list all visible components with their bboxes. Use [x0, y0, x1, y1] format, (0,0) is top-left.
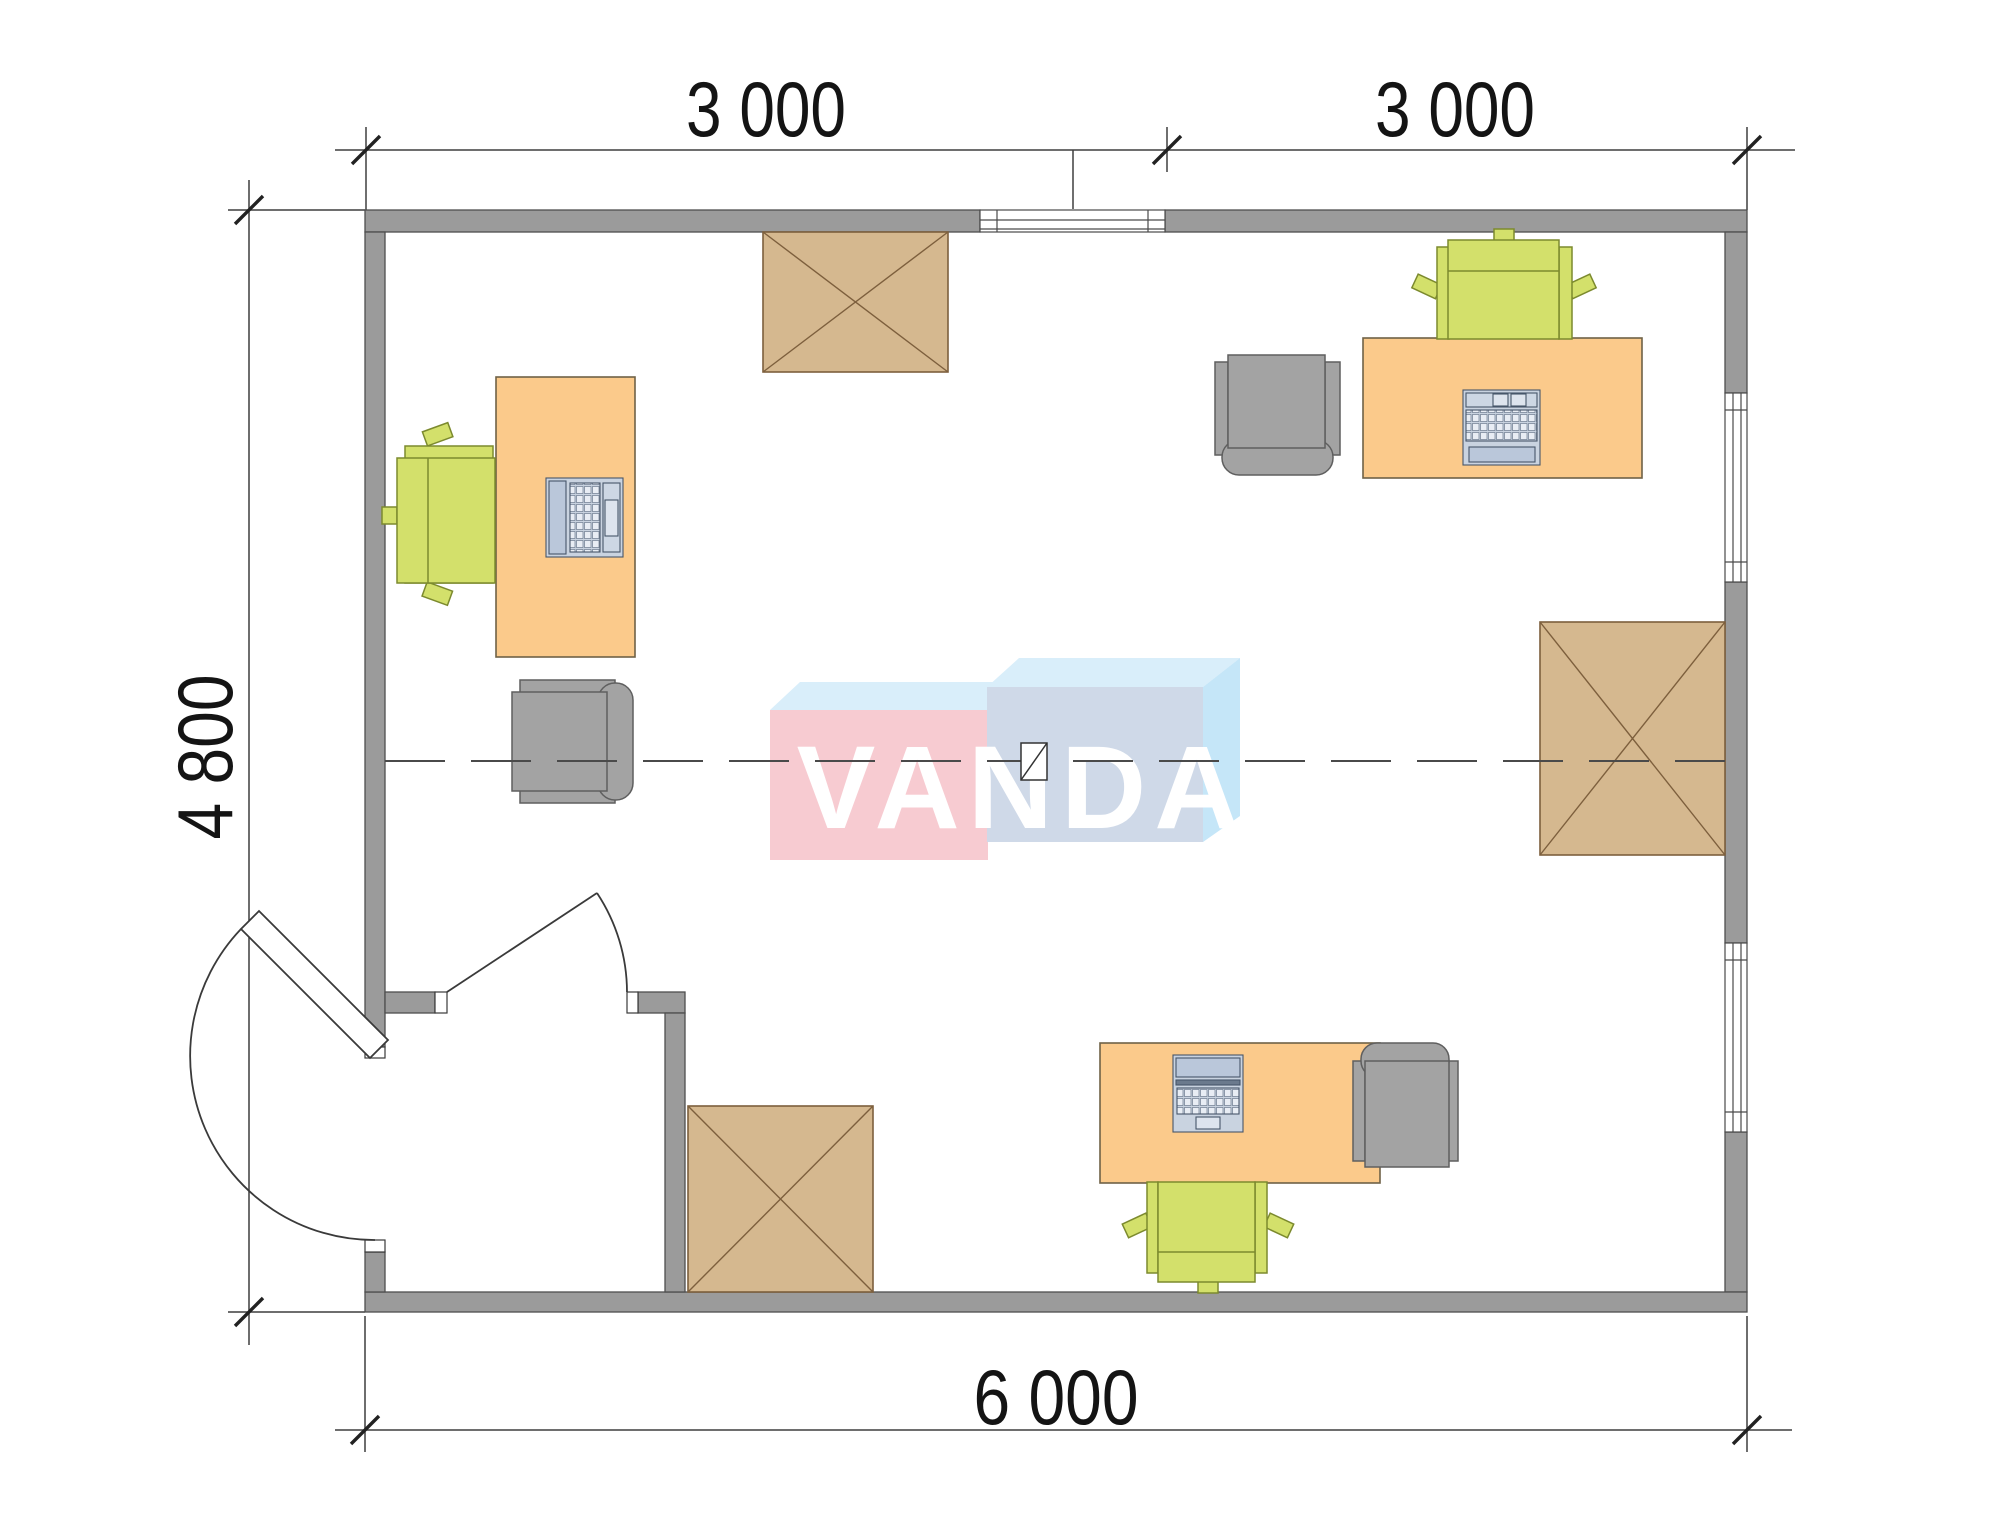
task-chair-top-right: [1412, 229, 1596, 339]
task-chair-left: [382, 423, 495, 606]
logo-right-top-face: [987, 658, 1240, 687]
task-chair-bottom: [1122, 1182, 1293, 1293]
floor-plan-page: 3 000 3 000 4 800 6 000 VANDA: [0, 0, 2000, 1520]
logo-wordmark: VANDA: [797, 722, 1248, 854]
partition-wall: [638, 992, 685, 1013]
dim-top-right: 3 000: [1375, 65, 1535, 153]
partition-wall: [385, 992, 435, 1013]
laptop-top-right-desk: [1463, 390, 1540, 465]
side-table-top: [763, 232, 948, 372]
armchair-top-right: [1215, 355, 1340, 475]
laptop-bottom-desk: [1173, 1055, 1243, 1132]
watermark-logo: VANDA: [770, 658, 1247, 860]
door-jambs: [365, 992, 638, 1252]
laptop-left-desk: [546, 478, 623, 557]
logo-left-top-face: [770, 682, 1018, 710]
side-table-right: [1540, 622, 1725, 855]
entrance-door-swing-arc: [190, 929, 375, 1240]
armchair-bottom-right: [1353, 1043, 1458, 1167]
partition-wall: [665, 1013, 685, 1292]
window-right-upper: [1725, 393, 1747, 582]
dim-bottom: 6 000: [974, 1353, 1139, 1441]
armchair-left: [512, 680, 633, 803]
floor-plan-drawing: 3 000 3 000 4 800 6 000 VANDA: [0, 0, 2000, 1520]
side-table-bottom-left: [688, 1106, 873, 1292]
window-right-lower: [1725, 943, 1747, 1132]
dim-left: 4 800: [161, 675, 249, 840]
dim-top-left: 3 000: [686, 65, 846, 153]
interior-door-swing-arc: [597, 893, 627, 992]
entrance-door: [190, 911, 388, 1240]
window-top: [980, 210, 1165, 232]
interior-door: [447, 893, 627, 992]
section-marker: [1021, 743, 1047, 780]
interior-door-leaf: [447, 893, 597, 992]
